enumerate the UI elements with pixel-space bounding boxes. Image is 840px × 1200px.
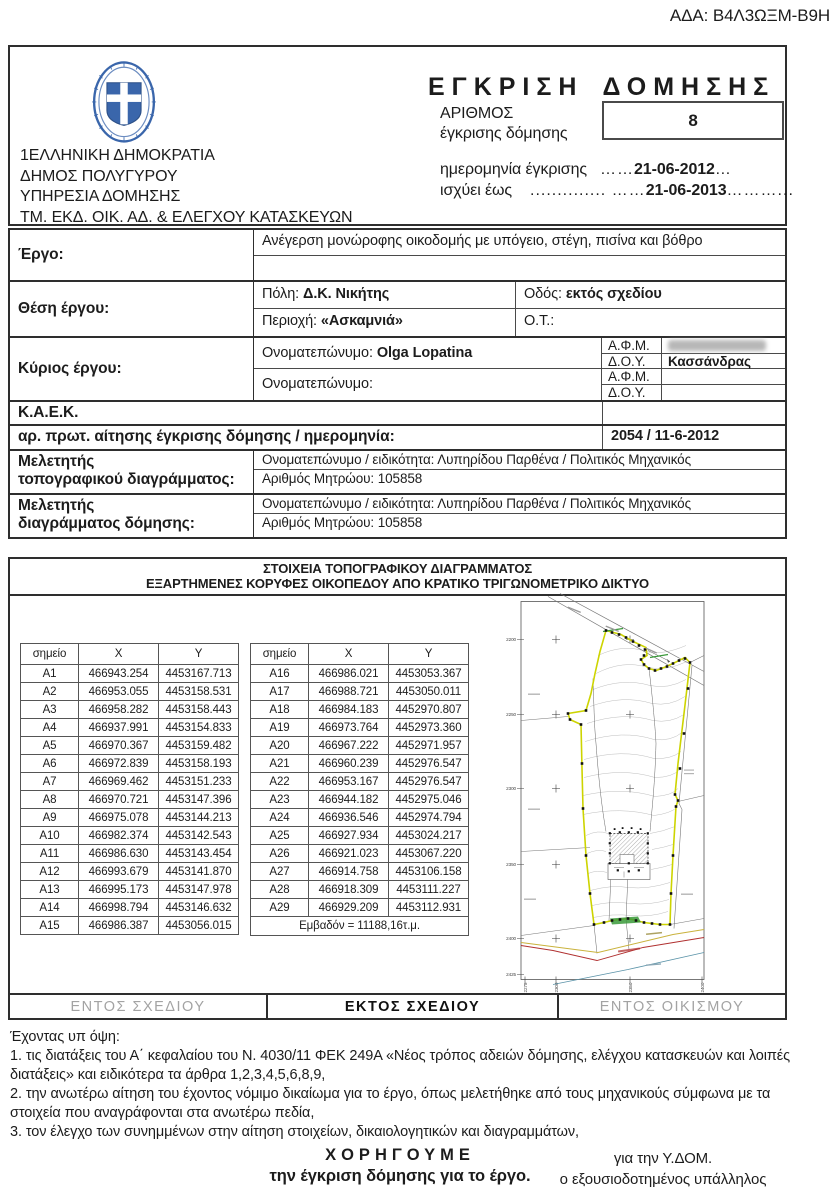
coord-cell: A25: [251, 827, 309, 845]
valid-until-row: ισχύει έως.............. ……21-06-2013…………: [440, 182, 794, 200]
project-description: Ανέγερση μονώροφης οικοδομής με υπόγειο,…: [254, 230, 785, 256]
doy-row: Δ.Ο.Υ. Κασσάνδρας: [602, 354, 785, 370]
issuing-authority: 1ΕΛΛΗΝΙΚΗ ΔΗΜΟΚΡΑΤΙΑ ΔΗΜΟΣ ΠΟΛΥΓΥΡΟΥ ΥΠΗ…: [20, 146, 352, 228]
coord-cell: A2: [21, 683, 79, 701]
col-header-x: X: [79, 644, 159, 665]
dotted-leader: ……: [606, 182, 645, 199]
document-title: ΕΓΚΡΙΣΗ ΔΟΜΗΣΗΣ: [428, 73, 775, 102]
coord-row: A1466943.2544453167.713: [21, 665, 239, 683]
coord-cell: 4452973.360: [389, 719, 469, 737]
coord-cell: 4453146.632: [159, 899, 239, 917]
coord-cell: 4453144.213: [159, 809, 239, 827]
coord-cell: A8: [21, 791, 79, 809]
coord-cell: 4453158.443: [159, 701, 239, 719]
authority-line: ΥΠΗΡΕΣΙΑ ΔΟΜΗΣΗΣ: [20, 187, 352, 208]
considering-intro: Έχοντας υπ όψη:: [10, 1028, 806, 1047]
coord-cell: A23: [251, 791, 309, 809]
coord-row: A14466998.7944453146.632: [21, 899, 239, 917]
afm-value-redacted: [662, 338, 785, 353]
svg-text:2250: 2250: [506, 712, 516, 717]
coord-row: A5466970.3674453159.482: [21, 737, 239, 755]
coord-cell: 4452976.547: [389, 773, 469, 791]
greek-coat-of-arms-icon: [68, 55, 180, 151]
col-header-x: X: [309, 644, 389, 665]
coord-cell: 4453053.367: [389, 665, 469, 683]
coord-cell: 466993.679: [79, 863, 159, 881]
coord-cell: 4452974.794: [389, 809, 469, 827]
coord-row: A18466984.1834452970.807: [251, 701, 469, 719]
coord-cell: 466953.167: [309, 773, 389, 791]
coord-cell: 4453112.931: [389, 899, 469, 917]
coord-cell: A4: [21, 719, 79, 737]
redaction-blur: [668, 340, 766, 351]
survey-map-drawing: 2200 2250 2300 2350 2400 2425 2275 2300 …: [498, 593, 786, 994]
surveyor-topographic-label: Μελετητής τοπογραφικού διαγράμματος:: [10, 451, 254, 493]
coord-row: A26466921.0234453067.220: [251, 845, 469, 863]
coord-cell: A20: [251, 737, 309, 755]
col-header-point: σημείο: [251, 644, 309, 665]
coord-row: A12466993.6794453141.870: [21, 863, 239, 881]
coord-cell: 4453154.833: [159, 719, 239, 737]
coord-row: A10466982.3744453142.543: [21, 827, 239, 845]
considering-item: 1. τις διατάξεις του Α΄ κεφαλαίου του Ν.…: [10, 1047, 806, 1085]
coord-row: A27466914.7584453106.158: [251, 863, 469, 881]
afm-label: Α.Φ.Μ.: [602, 338, 662, 353]
coord-cell: 466937.991: [79, 719, 159, 737]
project-description-empty-line: [254, 256, 785, 280]
coord-cell: 466929.209: [309, 899, 389, 917]
coord-cell: 466975.078: [79, 809, 159, 827]
coord-cell: 4453141.870: [159, 863, 239, 881]
building-footprint: [608, 834, 650, 880]
coord-header-row: σημείο X Y: [251, 644, 469, 665]
surveyor-name-specialty: Ονοματεπώνυμο / ειδικότητα: Λυπηρίδου Πα…: [254, 495, 785, 514]
coord-row: A19466973.7644452973.360: [251, 719, 469, 737]
coord-cell: 466970.721: [79, 791, 159, 809]
surveyor-label-line2: διαγράμματος δόμησης:: [18, 515, 245, 533]
vegetation-marks: [603, 629, 668, 925]
coord-cell: 466988.721: [309, 683, 389, 701]
coord-cell: 466986.021: [309, 665, 389, 683]
location-label: Θέση έργου:: [10, 282, 254, 336]
coord-cell: A18: [251, 701, 309, 719]
city-label: Πόλη:: [262, 286, 299, 302]
signature-for: για την Υ.ΔΟΜ.: [528, 1148, 798, 1169]
coord-row: A8466970.7214453147.396: [21, 791, 239, 809]
coord-cell: 4453159.482: [159, 737, 239, 755]
coord-cell: 4453147.396: [159, 791, 239, 809]
topographic-title: ΣΤΟΙΧΕΙΑ ΤΟΠΟΓΡΑΦΙΚΟΥ ΔΙΑΓΡΑΜΜΑΤΟΣ ΕΞΑΡΤ…: [10, 559, 785, 596]
coord-cell: 466967.222: [309, 737, 389, 755]
coord-cell: 4453050.011: [389, 683, 469, 701]
coord-row: A24466936.5464452974.794: [251, 809, 469, 827]
map-x-labels: 2275 2300 2350 2400: [523, 982, 705, 992]
coord-cell: 4453024.217: [389, 827, 469, 845]
doy-value: Κασσάνδρας: [662, 354, 785, 369]
coord-row: A23466944.1824452975.046: [251, 791, 469, 809]
coord-cell: A19: [251, 719, 309, 737]
col-header-y: Y: [389, 644, 469, 665]
coord-row: A2466953.0554453158.531: [21, 683, 239, 701]
coord-cell: 466943.254: [79, 665, 159, 683]
coord-cell: A21: [251, 755, 309, 773]
coord-cell: A13: [21, 881, 79, 899]
doy-2-value: [662, 385, 785, 401]
coord-row: A4466937.9914453154.833: [21, 719, 239, 737]
protocol-value: 2054 / 11-6-2012: [602, 426, 785, 449]
col-header-point: σημείο: [21, 644, 79, 665]
coord-cell: 466995.173: [79, 881, 159, 899]
coord-cell: 466918.309: [309, 881, 389, 899]
protocol-label: αρ. πρωτ. αίτησης έγκρισης δόμησης / ημε…: [10, 426, 602, 449]
coord-row: A13466995.1734453147.978: [21, 881, 239, 899]
dotted-leader: ………...: [727, 182, 794, 199]
svg-text:2300: 2300: [506, 786, 516, 791]
street-cell: Οδός: εκτός σχεδίου: [516, 282, 785, 308]
coord-cell: A16: [251, 665, 309, 683]
owner-name-label: Ονοματεπώνυμο:: [262, 345, 373, 361]
coord-cell: 466969.462: [79, 773, 159, 791]
coord-cell: 466960.239: [309, 755, 389, 773]
coord-cell: 466927.934: [309, 827, 389, 845]
street-value: εκτός σχεδίου: [566, 286, 662, 302]
valid-until-label: ισχύει έως: [440, 182, 530, 200]
zone-ektos-sxediou: ΕΚΤΟΣ ΣΧΕΔΙΟΥ: [268, 995, 559, 1018]
considering-item: 3. τον έλεγχο των συνημμένων στην αίτηση…: [10, 1123, 806, 1142]
coord-cell: A17: [251, 683, 309, 701]
project-label: Έργο:: [10, 230, 254, 280]
area-row: Εμβαδόν = 11188,16τ.μ.: [251, 917, 469, 936]
coord-cell: 466986.387: [79, 917, 159, 935]
coord-cell: 466953.055: [79, 683, 159, 701]
coord-cell: 4453167.713: [159, 665, 239, 683]
survey-point-markers: [567, 629, 692, 926]
doy-label: Δ.Ο.Υ.: [602, 354, 662, 369]
owner-name-2-label: Ονοματεπώνυμο:: [262, 376, 373, 392]
area-cell: Περιοχή: «Ασκαμνιά»: [254, 309, 516, 336]
coord-cell: 4453151.233: [159, 773, 239, 791]
row-protocol: αρ. πρωτ. αίτησης έγκρισης δόμησης / ημε…: [10, 426, 785, 451]
surveyor-name-specialty: Ονοματεπώνυμο / ειδικότητα: Λυπηρίδου Πα…: [254, 451, 785, 470]
coord-cell: 4452976.547: [389, 755, 469, 773]
coord-cell: A3: [21, 701, 79, 719]
afm-2-value: [662, 369, 785, 384]
coord-cell: 4453147.978: [159, 881, 239, 899]
svg-text:2200: 2200: [506, 637, 516, 642]
row-project: Έργο: Ανέγερση μονώροφης οικοδομής με υπ…: [10, 230, 785, 282]
coord-cell: A1: [21, 665, 79, 683]
coord-cell: 466958.282: [79, 701, 159, 719]
coord-row: A9466975.0784453144.213: [21, 809, 239, 827]
coord-cell: 466982.374: [79, 827, 159, 845]
svg-text:2400: 2400: [506, 936, 516, 941]
coord-cell: 4453143.454: [159, 845, 239, 863]
approval-number-value: 8: [602, 101, 784, 140]
coord-cell: A9: [21, 809, 79, 827]
approval-number-label: ΑΡΙΘΜΟΣ: [440, 105, 513, 123]
parcel-boundary: [568, 631, 690, 925]
svg-text:2425: 2425: [506, 972, 516, 977]
doy-2-row: Δ.Ο.Υ.: [602, 385, 785, 401]
authority-line: ΤΜ. ΕΚΔ. ΟΙΚ. ΑΔ. & ΕΛΕΓΧΟΥ ΚΑΤΑΣΚΕΥΩΝ: [20, 208, 352, 229]
project-info-table: Έργο: Ανέγερση μονώροφης οικοδομής με υπ…: [8, 228, 787, 539]
coord-cell: A27: [251, 863, 309, 881]
coord-cell: A7: [21, 773, 79, 791]
authority-line: ΔΗΜΟΣ ΠΟΛΥΓΥΡΟΥ: [20, 167, 352, 188]
map-y-labels: 2200 2250 2300 2350 2400 2425: [506, 637, 516, 977]
coord-cell: 466984.183: [309, 701, 389, 719]
afm-2-row: Α.Φ.Μ.: [602, 369, 785, 385]
coord-cell: A28: [251, 881, 309, 899]
owner-name-value: Olga Lopatina: [377, 345, 472, 361]
coord-row: A17466988.7214453050.011: [251, 683, 469, 701]
coord-cell: A24: [251, 809, 309, 827]
approval-date-row: ημερομηνία έγκρισης……21-06-2012…: [440, 161, 732, 179]
afm-2-label: Α.Φ.Μ.: [602, 369, 662, 384]
zone-entos-sxediou: ΕΝΤΟΣ ΣΧΕΔΙΟΥ: [10, 995, 268, 1018]
coord-row: A20466967.2224452971.957: [251, 737, 469, 755]
city-cell: Πόλη: Δ.Κ. Νικήτης: [254, 282, 516, 308]
coord-cell: A10: [21, 827, 79, 845]
area-value: Εμβαδόν = 11188,16τ.μ.: [251, 917, 469, 936]
row-kaek: Κ.Α.Ε.Κ.: [10, 402, 785, 426]
owner-label: Κύριος έργου:: [10, 338, 254, 400]
coord-cell: A11: [21, 845, 79, 863]
coord-cell: A26: [251, 845, 309, 863]
coord-row: A16466986.0214453053.367: [251, 665, 469, 683]
coord-cell: 4452971.957: [389, 737, 469, 755]
owner-name-2-cell: Ονοματεπώνυμο:: [254, 369, 601, 400]
coord-cell: A29: [251, 899, 309, 917]
approval-number-sublabel: έγκρισης δόμησης: [440, 125, 568, 143]
coord-row: A7466969.4624453151.233: [21, 773, 239, 791]
owner-name-cell: Ονοματεπώνυμο: Olga Lopatina: [254, 338, 601, 369]
ada-code: ΑΔΑ: Β4Λ3ΩΞΜ-Β9Η: [670, 6, 830, 26]
coord-cell: 4452970.807: [389, 701, 469, 719]
col-header-y: Y: [159, 644, 239, 665]
surveyor-registry-number: Αριθμός Μητρώου: 105858: [254, 514, 785, 533]
coord-cell: A14: [21, 899, 79, 917]
doy-2-label: Δ.Ο.Υ.: [602, 385, 662, 401]
block-label: Ο.Τ.:: [524, 313, 554, 329]
dotted-leader: ……: [600, 161, 634, 178]
coord-cell: A6: [21, 755, 79, 773]
kaek-label: Κ.Α.Ε.Κ.: [10, 402, 602, 424]
approval-date-value: 21-06-2012: [634, 161, 715, 178]
afm-row: Α.Φ.Μ.: [602, 338, 785, 354]
surveyor-registry-number: Αριθμός Μητρώου: 105858: [254, 470, 785, 489]
coord-cell: 466914.758: [309, 863, 389, 881]
coord-row: A22466953.1674452976.547: [251, 773, 469, 791]
coord-cell: 4453142.543: [159, 827, 239, 845]
coord-cell: 4453111.227: [389, 881, 469, 899]
signature-role: ο εξουσιοδοτημένος υπάλληλος: [528, 1169, 798, 1190]
signature-block: για την Υ.ΔΟΜ. ο εξουσιοδοτημένος υπάλλη…: [528, 1148, 798, 1190]
coord-header-row: σημείο X Y: [21, 644, 239, 665]
zone-entos-oikismou: ΕΝΤΟΣ ΟΙΚΙΣΜΟΥ: [559, 995, 785, 1018]
considering-item: 2. την ανωτέρω αίτηση του έχοντος νόμιμο…: [10, 1085, 806, 1123]
building-permit-document: ΑΔΑ: Β4Λ3ΩΞΜ-Β9Η 1ΕΛΛΗΝΙΚΗ ΔΗΜΟΚΡΑΤΙΑ ΔΗ…: [0, 0, 840, 1200]
coord-cell: 4453106.158: [389, 863, 469, 881]
svg-text:2350: 2350: [628, 982, 633, 992]
block-cell: Ο.Τ.:: [516, 309, 785, 336]
row-location: Θέση έργου: Πόλη: Δ.Κ. Νικήτης Οδός: εκτ…: [10, 282, 785, 338]
kaek-value-empty: [602, 402, 785, 424]
surveyor-label-line1: Μελετητής: [18, 453, 245, 471]
bottom-feature-lines: [521, 930, 704, 985]
coord-cell: 466944.182: [309, 791, 389, 809]
coord-cell: 466921.023: [309, 845, 389, 863]
map-y-ticks: [517, 640, 524, 975]
coord-row: A21466960.2394452976.547: [251, 755, 469, 773]
coord-cell: A15: [21, 917, 79, 935]
topographic-title-line1: ΣΤΟΙΧΕΙΑ ΤΟΠΟΓΡΑΦΙΚΟΥ ΔΙΑΓΡΑΜΜΑΤΟΣ: [10, 561, 785, 576]
coord-row: A29466929.2094453112.931: [251, 899, 469, 917]
coord-cell: 4453067.220: [389, 845, 469, 863]
valid-until-value: 21-06-2013: [646, 182, 727, 199]
surveyor-label-line1: Μελετητής: [18, 497, 245, 515]
surveyor-diagram-label: Μελετητής διαγράμματος δόμησης:: [10, 495, 254, 537]
neighbour-boundary-lines: [521, 656, 704, 936]
svg-text:2350: 2350: [506, 862, 516, 867]
coord-row: A11466986.6304453143.454: [21, 845, 239, 863]
map-x-ticks: [525, 977, 702, 984]
coord-cell: 4453158.531: [159, 683, 239, 701]
coord-cell: A5: [21, 737, 79, 755]
coord-row: A15466986.3874453056.015: [21, 917, 239, 935]
header-box: 1ΕΛΛΗΝΙΚΗ ΔΗΜΟΚΡΑΤΙΑ ΔΗΜΟΣ ΠΟΛΥΓΥΡΟΥ ΥΠΗ…: [8, 45, 787, 226]
coord-cell: A22: [251, 773, 309, 791]
zone-strip: ΕΝΤΟΣ ΣΧΕΔΙΟΥ ΕΚΤΟΣ ΣΧΕΔΙΟΥ ΕΝΤΟΣ ΟΙΚΙΣΜ…: [8, 993, 787, 1020]
coord-cell: 466998.794: [79, 899, 159, 917]
topographic-title-line2: ΕΞΑΡΤΗΜΕΝΕΣ ΚΟΡΥΦΕΣ ΟΙΚΟΠΕΔΟΥ ΑΠΟ ΚΡΑΤΙΚ…: [10, 576, 785, 591]
coord-cell: 4453158.193: [159, 755, 239, 773]
coord-cell: 4453056.015: [159, 917, 239, 935]
coord-cell: 466972.839: [79, 755, 159, 773]
dotted-leader: …: [715, 161, 732, 178]
svg-text:2275: 2275: [523, 982, 528, 992]
row-surveyor-diagram: Μελετητής διαγράμματος δόμησης: Ονοματεπ…: [10, 495, 785, 537]
coord-cell: 466986.630: [79, 845, 159, 863]
coord-cell: 466973.764: [309, 719, 389, 737]
survey-map: 2200 2250 2300 2350 2400 2425 2275 2300 …: [498, 593, 786, 994]
coord-cell: 4452975.046: [389, 791, 469, 809]
coord-cell: 466970.367: [79, 737, 159, 755]
area-label: Περιοχή:: [262, 313, 317, 329]
city-value: Δ.Κ. Νικήτης: [303, 286, 389, 302]
row-surveyor-topographic: Μελετητής τοπογραφικού διαγράμματος: Ονο…: [10, 451, 785, 495]
coordinates-table-1: σημείο X Y A1466943.2544453167.713A24669…: [20, 643, 239, 935]
coord-row: A25466927.9344453024.217: [251, 827, 469, 845]
area-value: «Ασκαμνιά»: [321, 313, 403, 329]
row-owner: Κύριος έργου: Ονοματεπώνυμο: Olga Lopati…: [10, 338, 785, 402]
dotted-leader: ..............: [530, 182, 606, 199]
street-label: Οδός:: [524, 286, 562, 302]
coord-row: A3466958.2824453158.443: [21, 701, 239, 719]
coordinates-table-2: σημείο X Y A16466986.0214453053.367A1746…: [250, 643, 469, 936]
surveyor-label-line2: τοπογραφικού διαγράμματος:: [18, 471, 245, 489]
coord-cell: 466936.546: [309, 809, 389, 827]
svg-text:2400: 2400: [700, 982, 705, 992]
coord-row: A6466972.8394453158.193: [21, 755, 239, 773]
coord-row: A28466918.3094453111.227: [251, 881, 469, 899]
authority-line: 1ΕΛΛΗΝΙΚΗ ΔΗΜΟΚΡΑΤΙΑ: [20, 146, 352, 167]
topographic-data-box: ΣΤΟΙΧΕΙΑ ΤΟΠΟΓΡΑΦΙΚΟΥ ΔΙΑΓΡΑΜΜΑΤΟΣ ΕΞΑΡΤ…: [8, 557, 787, 1020]
approval-date-label: ημερομηνία έγκρισης: [440, 161, 600, 179]
coord-cell: A12: [21, 863, 79, 881]
